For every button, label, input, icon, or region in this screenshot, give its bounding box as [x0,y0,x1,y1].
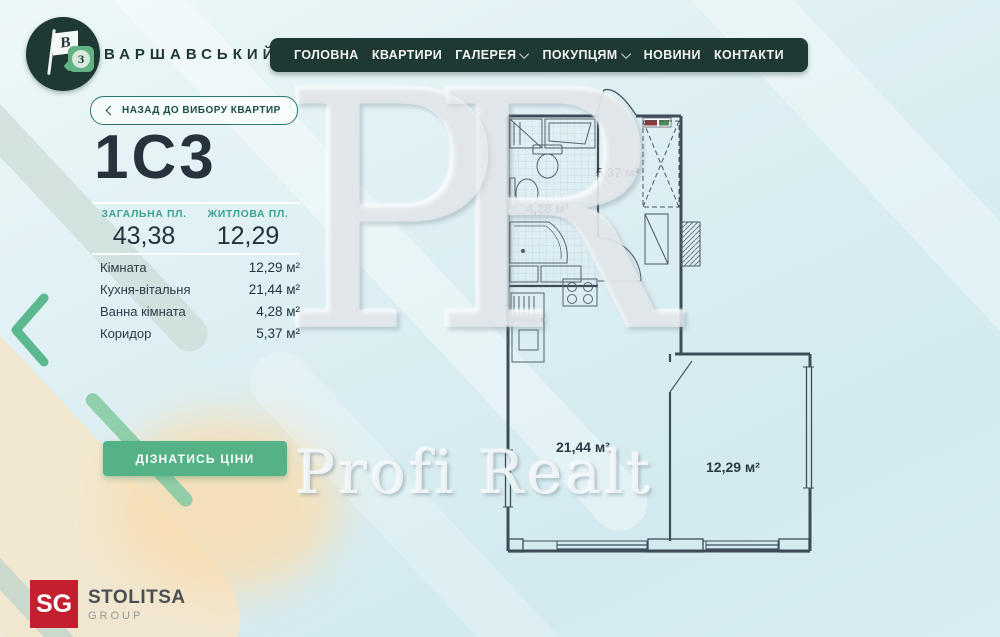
nav-item-contacts[interactable]: КОНТАКТИ [714,48,784,62]
nav-label: КОНТАКТИ [714,48,784,62]
nav-item-apartments[interactable]: КВАРТИРИ [372,48,442,62]
back-button-label: НАЗАД ДО ВИБОРУ КВАРТИР [122,105,281,116]
nav-label: ГОЛОВНА [294,48,359,62]
apartment-title: 1С3 [94,122,217,193]
room-area: 12,29 м² [249,260,300,275]
main-navbar: ГОЛОВНА КВАРТИРИ ГАЛЕРЕЯ ПОКУПЦЯМ НОВИНИ… [270,38,808,72]
brand-name: ВАРШАВСЬКИЙ [104,46,278,63]
plan-label-bathroom: 4,28 м² [526,201,570,216]
nav-label: КВАРТИРИ [372,48,442,62]
sg-logo-sub: GROUP [88,610,186,622]
logo-monogram-z: З [72,50,90,68]
room-area: 5,37 м² [256,326,300,341]
nav-item-gallery[interactable]: ГАЛЕРЕЯ [455,48,529,62]
room-name: Кімната [100,260,147,275]
plan-label-corridor: 5,37 м² [596,165,640,180]
table-row: Ванна кімната 4,28 м² [100,304,300,326]
site-logo[interactable]: В З [26,17,100,91]
stat-value: 12,29 [196,222,300,251]
wardrobe [643,121,679,207]
table-row: Кухня-вітальня 21,44 м² [100,282,300,304]
kitchen-fixtures [511,279,597,362]
rooms-table: Кімната 12,29 м² Кухня-вітальня 21,44 м²… [100,260,300,348]
table-row: Коридор 5,37 м² [100,326,300,348]
nav-item-buyers[interactable]: ПОКУПЦЯМ [542,48,630,62]
sg-logo-icon: SG [30,580,78,628]
logo-green-badge: З [68,46,94,72]
nav-label: НОВИНИ [644,48,701,62]
windows [503,367,814,552]
room-door [670,361,692,392]
page: 5,37 м² 4,28 м² 21,44 м² 12,29 м² PR Pro… [0,0,1000,637]
carousel-prev-arrow[interactable] [6,292,50,368]
chevron-down-icon [519,49,529,59]
developer-logo[interactable]: SG STOLITSA GROUP [30,580,186,628]
kitchen-sink-icon [511,293,544,319]
room-name: Коридор [100,326,151,341]
sg-logo-name: STOLITSA [88,587,186,609]
nav-label: ПОКУПЦЯМ [542,48,617,62]
nav-item-home[interactable]: ГОЛОВНА [294,48,359,62]
plan-label-kitchen-living: 21,44 м² [556,439,610,455]
stat-value: 43,38 [92,222,196,251]
fridge-icon [512,321,544,362]
entrance-door [598,90,636,115]
room-name: Кухня-вітальня [100,282,191,297]
room-area: 21,44 м² [249,282,300,297]
stat-total-area: ЗАГАЛЬНА ПЛ. 43,38 [92,208,196,251]
room-area: 4,28 м² [256,304,300,319]
nav-label: ГАЛЕРЕЯ [455,48,516,62]
chevron-down-icon [621,49,631,59]
corridor-cabinet [645,214,700,266]
floorplan-drawing: 5,37 м² 4,28 м² 21,44 м² 12,29 м² [500,85,820,565]
table-row: Кімната 12,29 м² [100,260,300,282]
room-name: Ванна кімната [100,304,186,319]
plan-label-room: 12,29 м² [706,459,760,475]
stat-living-area: ЖИТЛОВА ПЛ. 12,29 [196,208,300,251]
stat-label: ЗАГАЛЬНА ПЛ. [92,208,196,220]
sg-logo-text: STOLITSA GROUP [88,587,186,622]
find-out-prices-button[interactable]: ДІЗНАТИСЬ ЦІНИ [103,441,287,476]
back-to-apartments-button[interactable]: НАЗАД ДО ВИБОРУ КВАРТИР [90,96,298,125]
chevron-left-icon [106,106,116,116]
divider [92,253,300,255]
bathroom-door [598,238,641,281]
nav-item-news[interactable]: НОВИНИ [644,48,701,62]
divider [92,202,300,204]
door-marker [643,118,671,127]
area-stats: ЗАГАЛЬНА ПЛ. 43,38 ЖИТЛОВА ПЛ. 12,29 [92,208,300,251]
stat-label: ЖИТЛОВА ПЛ. [196,208,300,220]
